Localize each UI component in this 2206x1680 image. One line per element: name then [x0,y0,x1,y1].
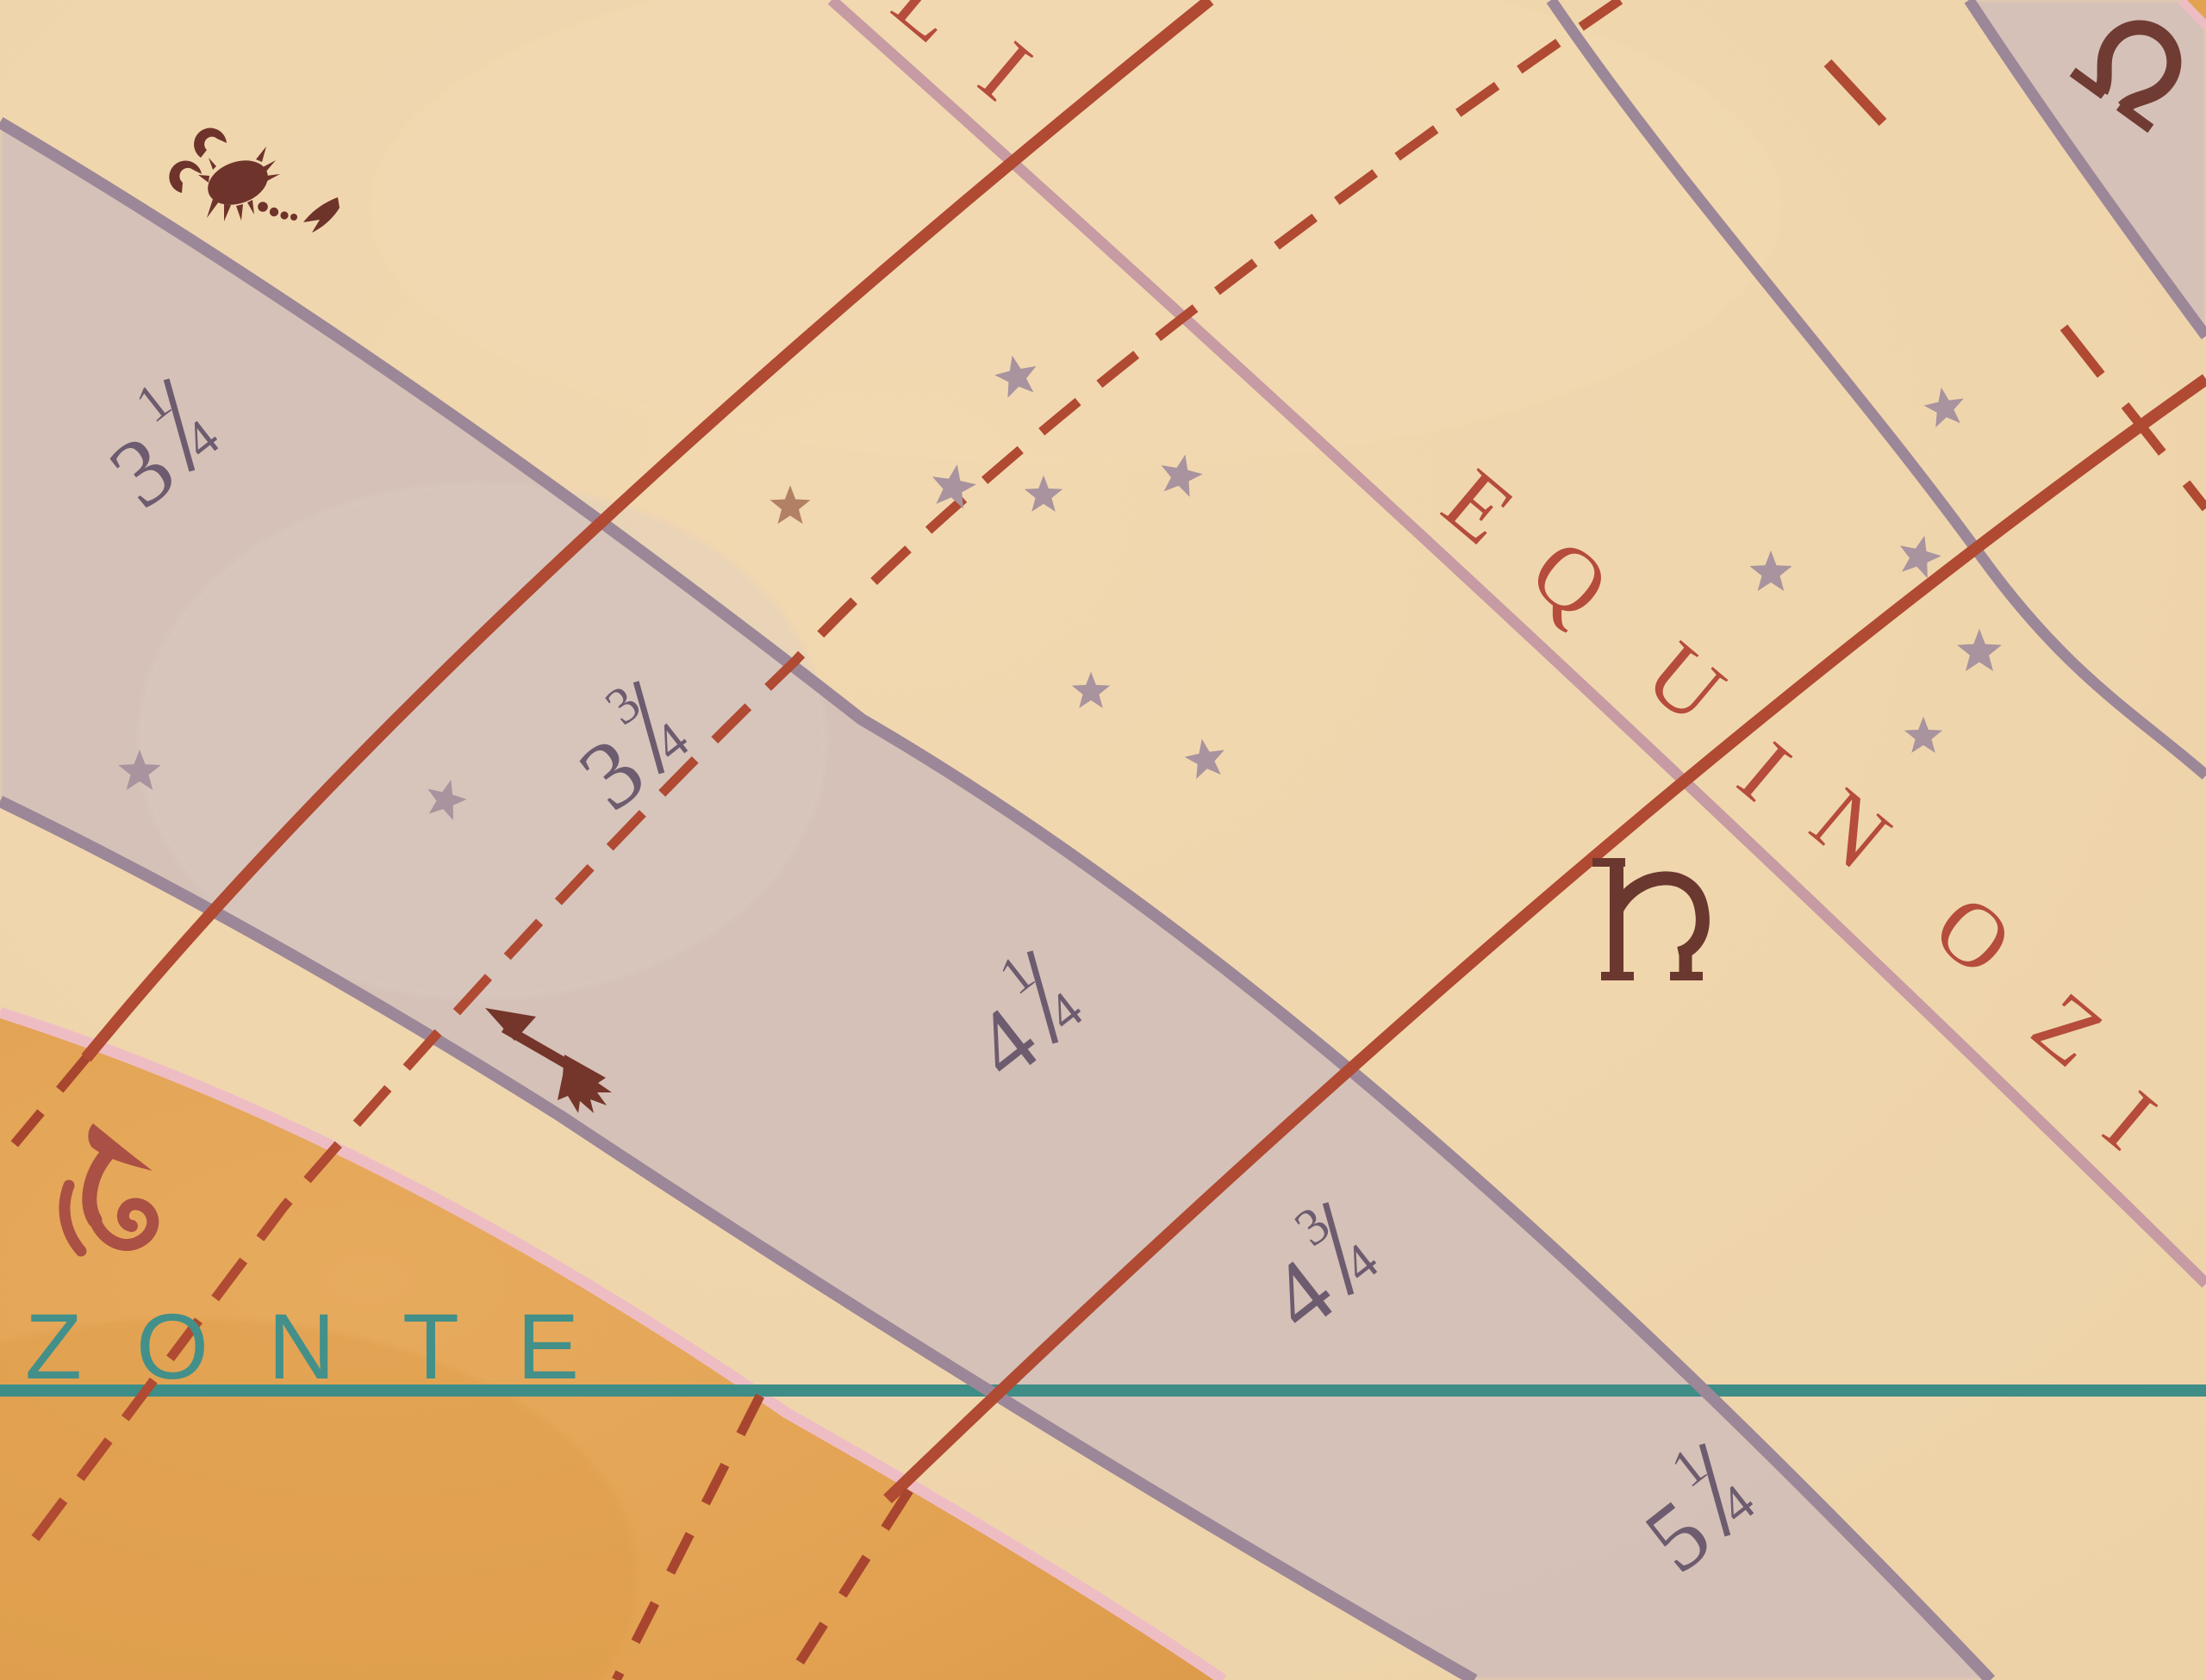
svg-text:N: N [268,1294,335,1398]
svg-text:O: O [136,1294,209,1398]
svg-text:E: E [517,1294,579,1398]
svg-text:T: T [402,1294,459,1398]
svg-text:Z: Z [25,1294,82,1398]
